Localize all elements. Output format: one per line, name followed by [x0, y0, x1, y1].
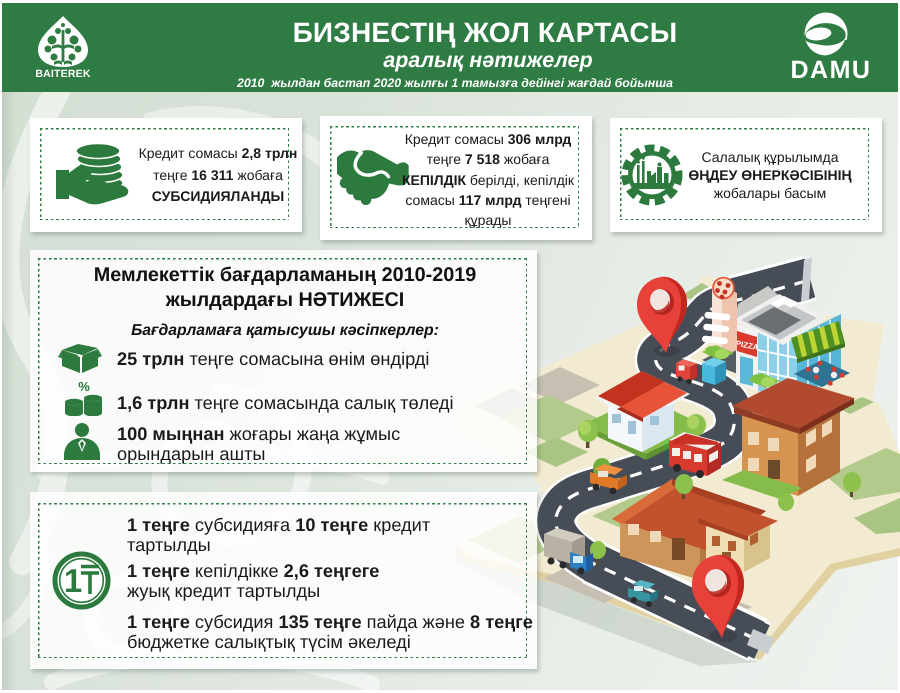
svg-text:%: %	[78, 380, 90, 394]
svg-text:1: 1	[64, 562, 82, 599]
